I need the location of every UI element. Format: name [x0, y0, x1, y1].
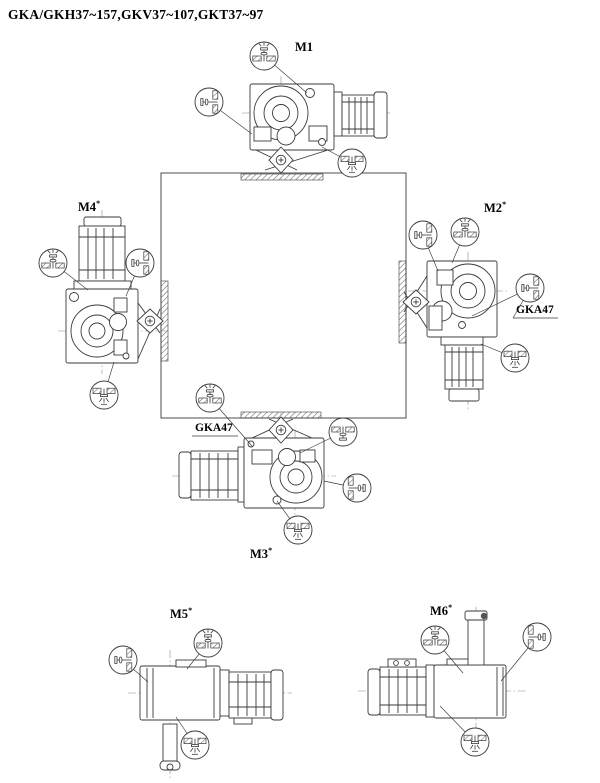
mounting-surface-square	[161, 173, 406, 418]
m3-position-label: M3*	[250, 546, 272, 562]
m2-output-shaft-diamond-icon	[403, 290, 429, 314]
m3-breather-vent-plug-icon	[196, 384, 224, 412]
m1-motor	[342, 92, 387, 138]
m6-output-shaft	[465, 611, 487, 665]
m6-gear-housing	[434, 665, 506, 718]
diagram-artwork	[0, 0, 600, 783]
gka47-label-m3: GKA47	[195, 422, 233, 434]
mounting-position-diagram-page: GKA/GKH37~157,GKV37~107,GKT37~97	[0, 0, 600, 783]
m6-breather-vent-plug-icon	[421, 626, 449, 654]
m4-position-label: M4*	[78, 199, 100, 215]
m2-oil-level-plug-icon	[409, 221, 437, 249]
mounting-pad-top	[241, 174, 323, 180]
m1-output-shaft-diamond-icon	[269, 147, 293, 173]
m4-motor	[79, 217, 125, 281]
m4-breather-vent-plug-icon	[39, 249, 67, 277]
m2-oil-level-plug-2-icon	[516, 274, 544, 302]
gka47-label-m2: GKA47	[516, 304, 554, 316]
m6-position-label: M6*	[430, 603, 452, 619]
m2-breather-vent-plug-icon	[451, 218, 479, 246]
m1-gear-unit-drawing	[242, 76, 390, 180]
m3-oil-drain-plug-icon	[284, 516, 312, 544]
m6-gear-unit-drawing	[358, 607, 528, 734]
m2-oil-drain-plug-icon	[501, 344, 529, 372]
m5-output-shaft	[160, 724, 180, 770]
m1-oil-level-plug-icon	[195, 88, 223, 116]
m4-gear-unit-drawing	[58, 210, 170, 374]
m5-oil-drain-plug-icon	[181, 731, 209, 759]
m2-gear-unit-drawing	[403, 252, 508, 410]
m5-oil-level-plug-icon	[109, 646, 137, 674]
m5-gear-unit-drawing	[128, 650, 292, 779]
m5-gear-housing	[140, 666, 220, 720]
m1-position-label: M1	[295, 39, 313, 55]
m6-motor	[368, 659, 426, 715]
m3-oil-fill-plug-icon	[329, 418, 357, 446]
m2-position-label: M2*	[484, 200, 506, 216]
m1-oil-drain-plug-icon	[338, 149, 366, 177]
m3-motor	[179, 451, 238, 500]
m6-oil-level-plug-icon	[523, 623, 551, 651]
m5-position-label: M5*	[170, 606, 192, 622]
m4-oil-drain-plug-icon	[90, 381, 118, 409]
m4-oil-level-plug-icon	[126, 249, 154, 277]
m3-oil-level-plug-icon	[343, 474, 371, 502]
m5-motor	[229, 670, 283, 724]
m4-output-shaft-diamond-icon	[137, 309, 163, 333]
m6-oil-drain-plug-icon	[461, 728, 489, 756]
m1-breather-vent-plug-icon	[250, 42, 278, 70]
m5-breather-vent-plug-icon	[194, 629, 222, 657]
m2-motor	[445, 345, 483, 401]
